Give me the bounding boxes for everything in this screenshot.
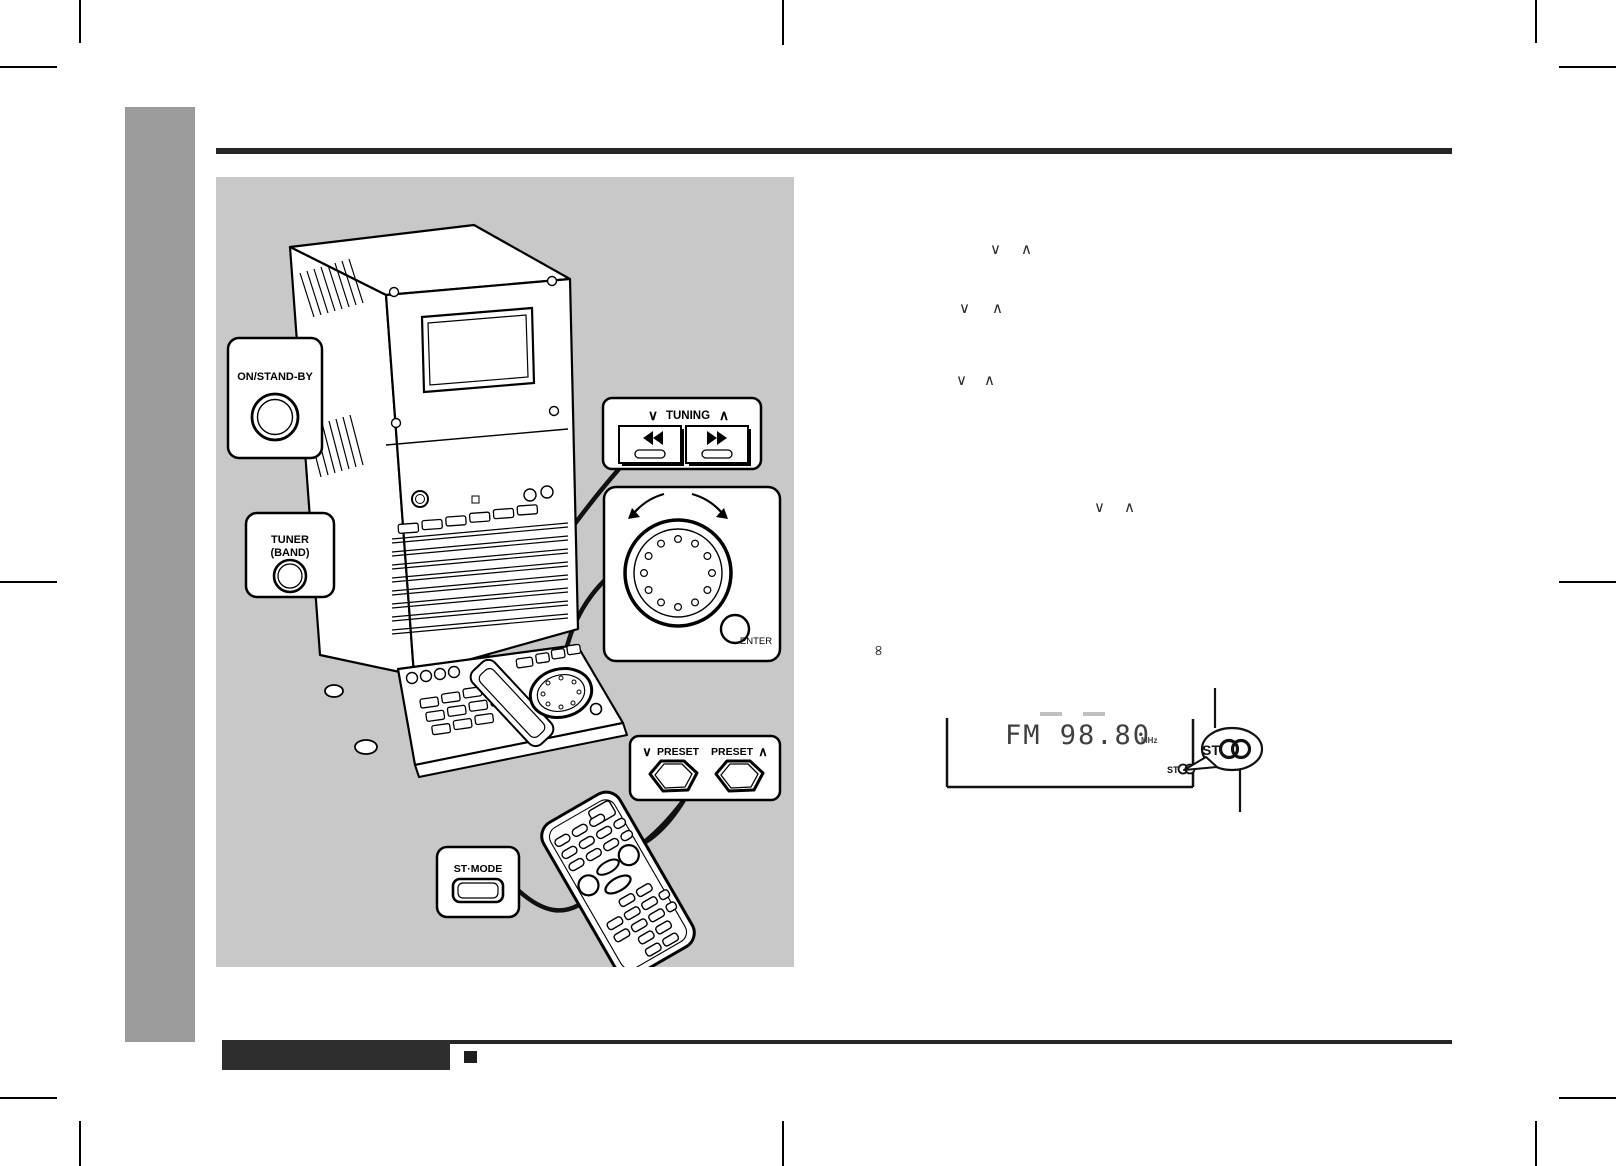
tuning-up-chevron-icon: ∧ (719, 407, 729, 423)
tuning-down-chevron-icon: ∨ (648, 407, 658, 423)
unit-jack-right (541, 486, 553, 498)
chevron-down-symbol: ∨ (990, 242, 1001, 257)
frequency-readout: FM 98.80 (1005, 720, 1151, 751)
header-rule (216, 148, 1452, 154)
display-top-remnant (1083, 712, 1105, 716)
callout-st-mode: ST·MODE (437, 847, 519, 917)
chapter-tab-sidebar (125, 107, 195, 1042)
display-top-remnant (1040, 712, 1062, 716)
callout-tuning: ∨ TUNING ∧ (603, 398, 761, 469)
st-mode-label: ST·MODE (454, 863, 502, 875)
tuning-label: TUNING (666, 410, 710, 422)
crop-mark (0, 66, 57, 68)
manual-page: ON/STAND-BY TUNER (BAND) ∨ TUNING ∧ (0, 0, 1616, 1166)
callout-tuner-band: TUNER (BAND) (246, 513, 334, 597)
crop-mark (79, 0, 81, 43)
chevron-up-symbol: ∧ (984, 373, 995, 388)
callout-preset: ∨ PRESET PRESET ∧ (630, 736, 780, 800)
crop-mark (1559, 1097, 1616, 1099)
crop-mark (782, 1121, 784, 1166)
mhz-unit: MHz (1141, 736, 1157, 745)
chevron-down-symbol: ∨ (1094, 500, 1105, 515)
tuner-label-line1: TUNER (271, 534, 309, 546)
preset-down-label: PRESET (657, 746, 700, 758)
crop-mark (1559, 581, 1616, 583)
on-standby-label: ON/STAND-BY (237, 371, 313, 383)
stereo-infinity-symbol: ∞ (871, 644, 886, 657)
fm-display-figure: FM 98.80 MHz ST ST (920, 680, 1280, 825)
chevron-up-symbol: ∧ (1124, 500, 1135, 515)
chevron-up-symbol: ∧ (1021, 242, 1032, 257)
tuner-label-line2: (BAND) (270, 547, 309, 559)
chevron-down-symbol: ∨ (956, 373, 967, 388)
stereo-callout-balloon: ST (1184, 728, 1262, 770)
tower-display-window-inner (428, 315, 528, 385)
preset-down-chevron-icon: ∨ (642, 744, 652, 759)
chevron-down-symbol: ∨ (959, 301, 970, 316)
crop-mark (782, 0, 784, 45)
st-indicator-text: ST (1167, 765, 1179, 775)
chevron-up-symbol: ∧ (992, 301, 1003, 316)
callout-on-standby: ON/STAND-BY (228, 338, 322, 458)
unit-jack-left (524, 489, 536, 501)
crop-mark (79, 1121, 81, 1166)
footer-section-bar (222, 1040, 450, 1070)
crop-mark (1559, 66, 1616, 68)
callout-jog-dial: ENTER (604, 487, 780, 661)
crop-mark (1535, 0, 1537, 43)
deck-enter-button (591, 704, 602, 715)
unit-small-square (472, 496, 479, 503)
preset-up-label: PRESET (711, 746, 754, 758)
crop-mark (1535, 1121, 1537, 1166)
crop-mark (0, 1097, 57, 1099)
enter-label: ENTER (740, 636, 772, 647)
balloon-st-text: ST (1202, 742, 1220, 758)
crop-mark (0, 581, 57, 583)
illustration-panel: ON/STAND-BY TUNER (BAND) ∨ TUNING ∧ (216, 177, 794, 967)
footer-bullet-square (464, 1051, 477, 1063)
preset-up-chevron-icon: ∧ (758, 744, 768, 759)
